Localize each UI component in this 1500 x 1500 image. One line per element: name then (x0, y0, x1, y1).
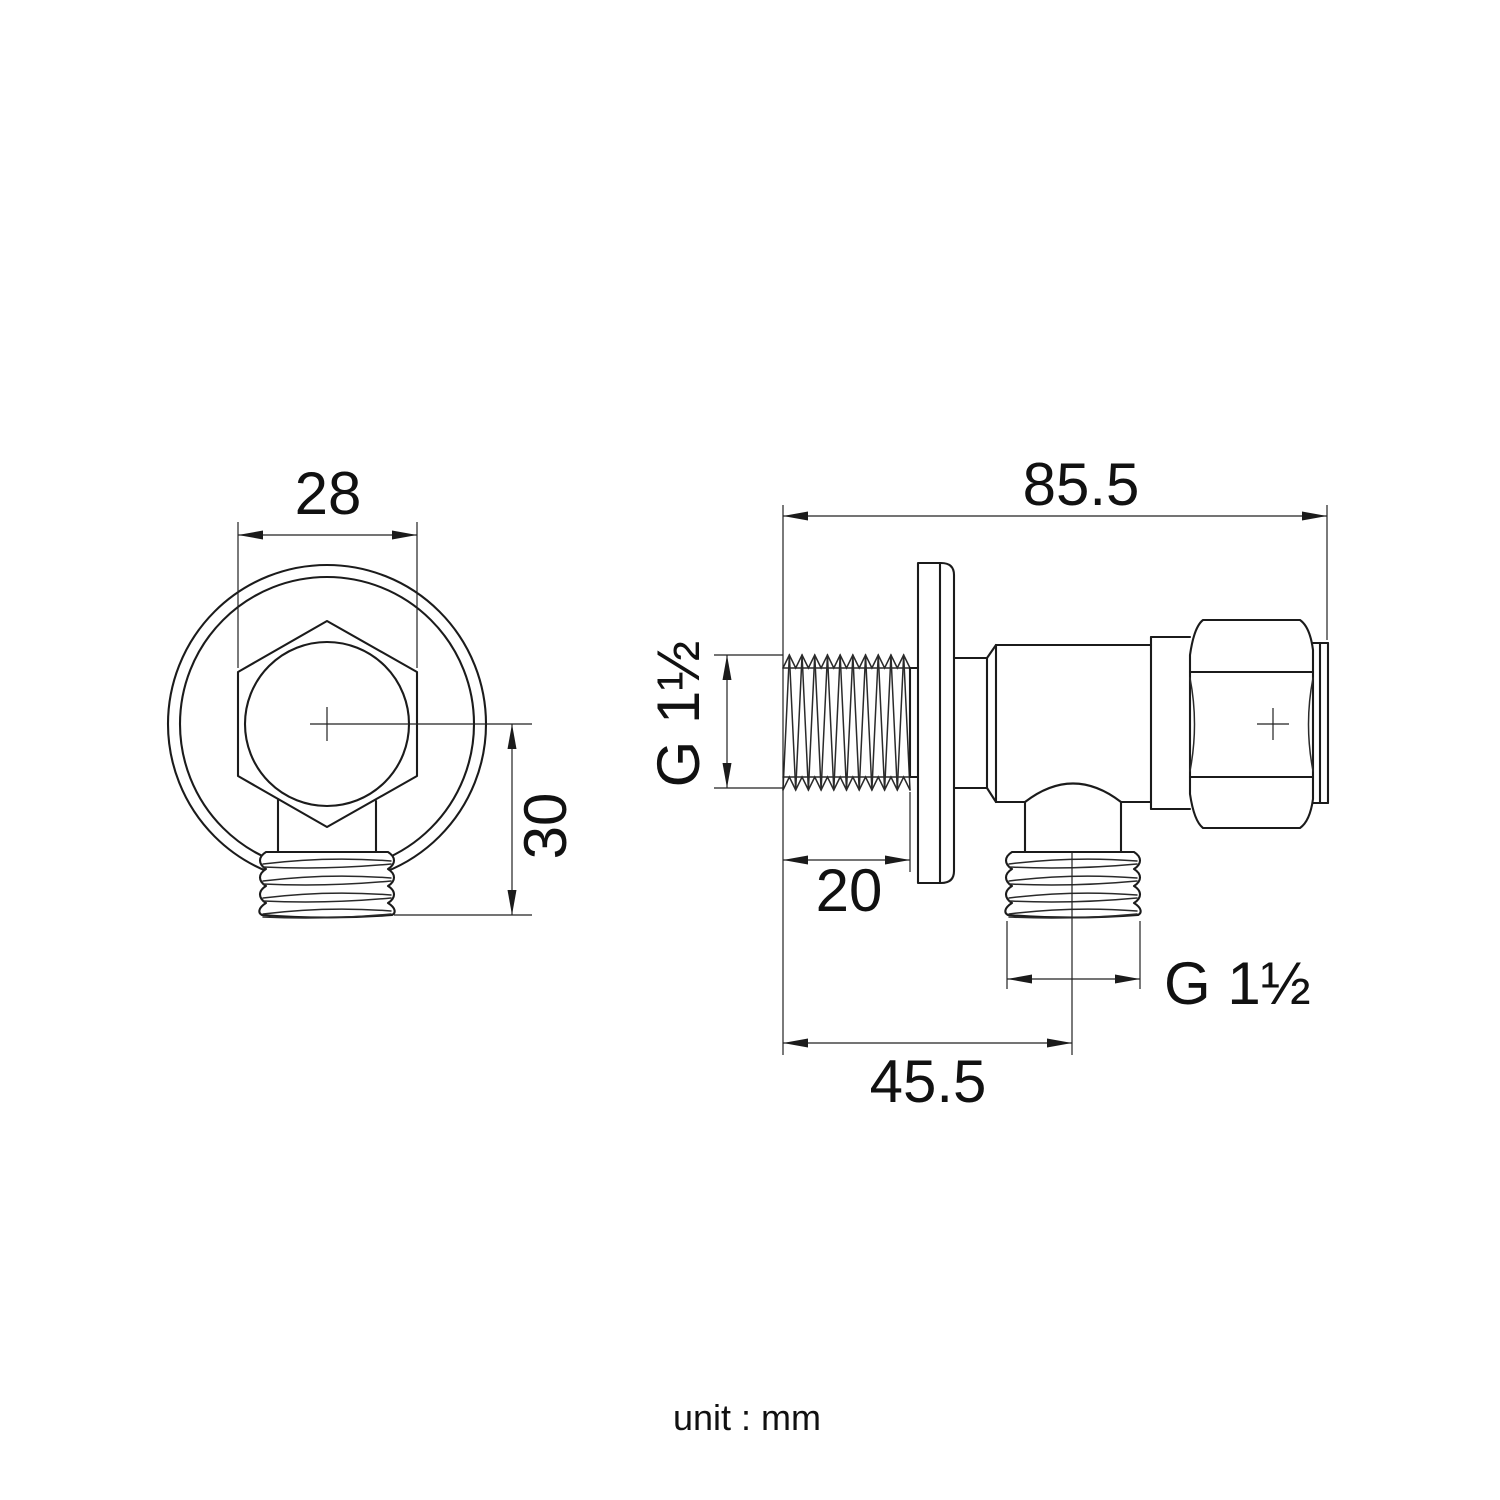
dim-28-label: 28 (295, 460, 362, 527)
inlet-thread-label: G 1½ (645, 641, 712, 788)
outlet-dome (1025, 784, 1121, 803)
dim-85-5-label: 85.5 (1023, 451, 1140, 518)
outlet-thread-label: G 1½ (1164, 950, 1311, 1017)
dim-20-label: 20 (816, 857, 883, 924)
dim-g12-outlet: G 1½ (1007, 921, 1311, 1017)
cap-hex-nut (1190, 620, 1313, 828)
technical-drawing-angle-valve: 28 30 85.5 G 1½ 20 45.5 (0, 0, 1500, 1500)
inlet-thread (783, 655, 910, 790)
unit-note: unit : mm (673, 1397, 821, 1438)
wall-flange (918, 563, 954, 883)
dim-45-5-label: 45.5 (870, 1048, 987, 1115)
outlet-neck-side (1025, 802, 1121, 852)
drawing-sheet: 28 30 85.5 G 1½ 20 45.5 (0, 0, 1500, 1500)
dim-g12-inlet: G 1½ (645, 641, 783, 788)
outlet-thread-front (259, 852, 394, 918)
inlet-shank (910, 668, 918, 777)
front-view (168, 565, 486, 918)
outlet-thread-side (1005, 852, 1140, 918)
dim-30-label: 30 (512, 793, 579, 860)
valve-body (996, 645, 1151, 802)
nut-collar (1151, 637, 1190, 809)
dimensions: 28 30 85.5 G 1½ 20 45.5 (238, 451, 1327, 1115)
nut-end-cap (1313, 643, 1328, 803)
body-shank (954, 645, 996, 802)
